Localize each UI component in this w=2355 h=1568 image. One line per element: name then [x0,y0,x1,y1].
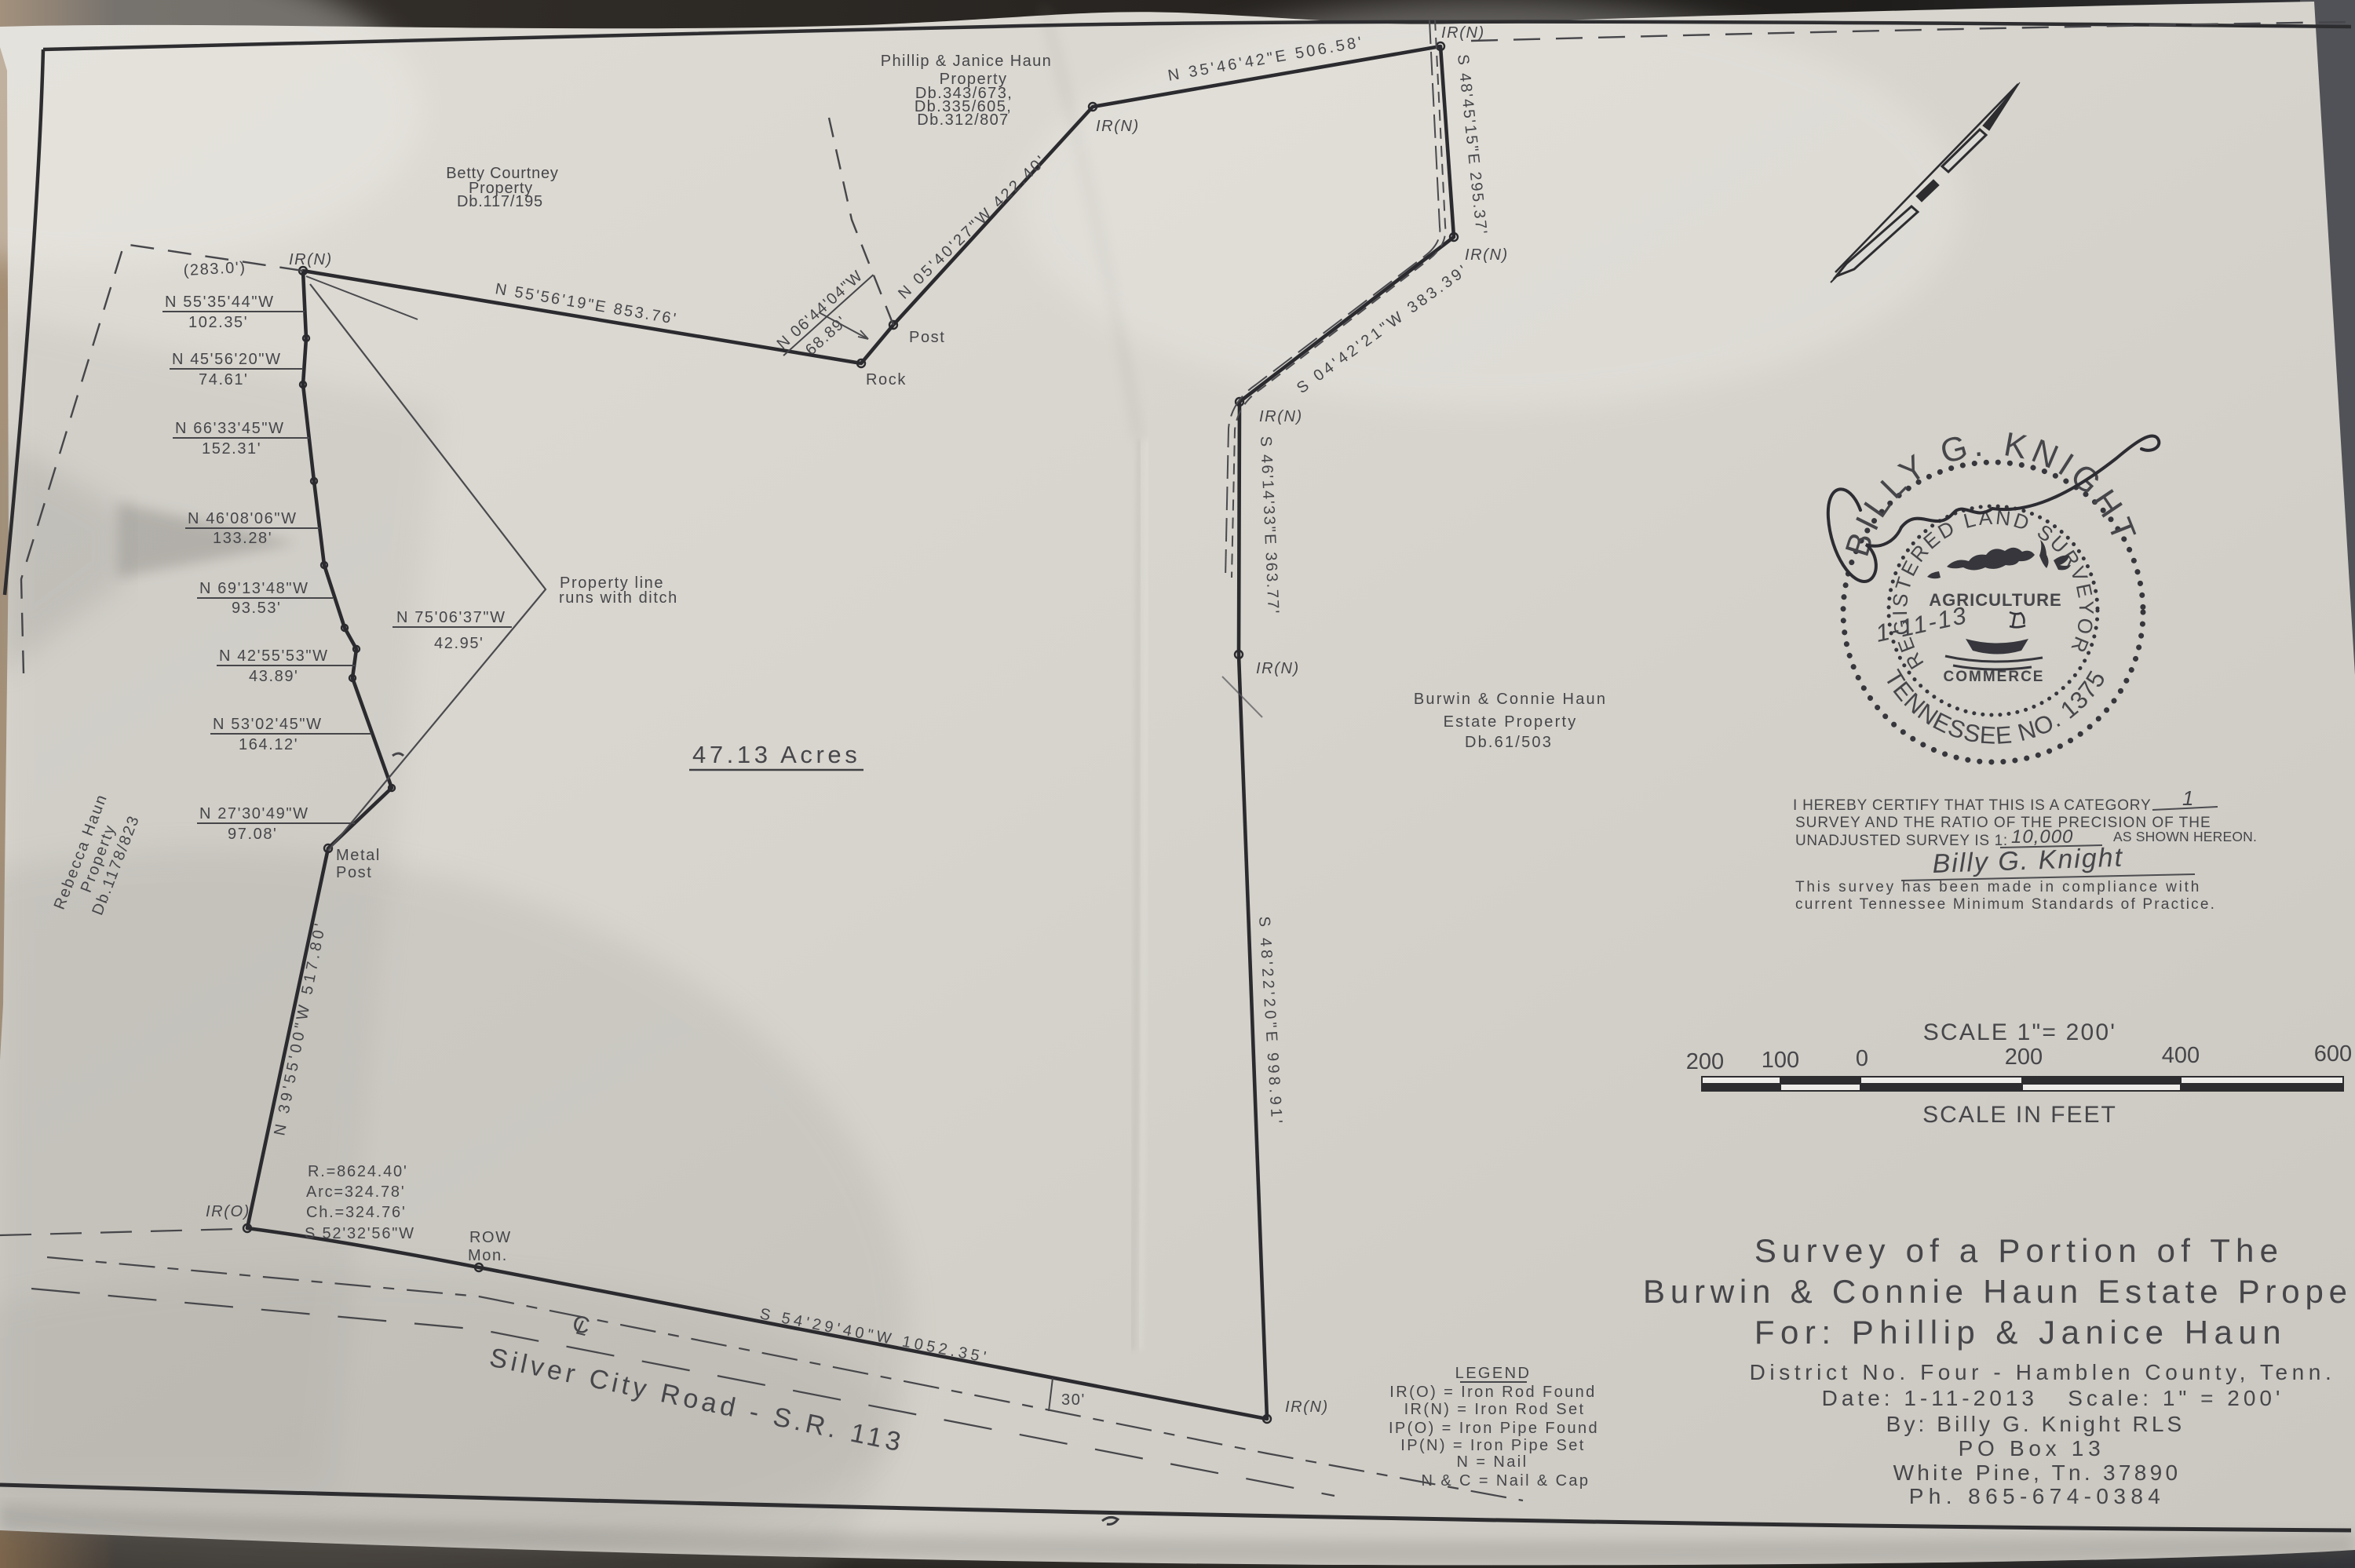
svg-text:1: 1 [2182,786,2193,810]
svg-text:N 69'13'48"W: N 69'13'48"W [199,580,309,597]
svg-text:Db.312/807: Db.312/807 [917,111,1009,129]
svg-text:IR(N): IR(N) [1259,408,1303,425]
svg-text:IR(N): IR(N) [1441,24,1485,42]
svg-text:400: 400 [2162,1043,2200,1068]
svg-text:N & C = Nail & Cap: N & C = Nail & Cap [1422,1472,1590,1490]
svg-text:IP(O) = Iron Pipe Found: IP(O) = Iron Pipe Found [1389,1420,1599,1437]
svg-text:AS SHOWN HEREON.: AS SHOWN HEREON. [2113,829,2257,844]
svg-text:Post: Post [909,329,945,346]
svg-text:This survey has been made in c: This survey has been made in compliance … [1795,879,2201,895]
svg-text:93.53': 93.53' [232,600,281,617]
svg-text:White Pine, Tn. 37890: White Pine, Tn. 37890 [1893,1460,2182,1485]
svg-text:runs with ditch: runs with ditch [559,589,678,607]
svg-text:N 27'30'49"W: N 27'30'49"W [199,805,309,822]
svg-text:District No. Four - Hamblen Co: District No. Four - Hamblen County, Tenn… [1750,1360,2336,1384]
svg-text:200: 200 [2005,1045,2043,1070]
svg-text:Db.61/503: Db.61/503 [1465,734,1553,751]
svg-text:IP(N) = Iron Pipe Set: IP(N) = Iron Pipe Set [1400,1437,1585,1454]
svg-text:Burwin & Connie Haun: Burwin & Connie Haun [1414,691,1607,708]
svg-text:74.61': 74.61' [199,371,248,388]
svg-text:200: 200 [1686,1049,1724,1074]
svg-text:Db.117/195: Db.117/195 [457,193,543,210]
svg-text:N 53'02'45"W: N 53'02'45"W [213,716,323,733]
svg-text:N 66'33'45"W: N 66'33'45"W [175,420,285,437]
svg-text:0: 0 [1856,1046,1868,1071]
svg-text:Phillip & Janice Haun: Phillip & Janice Haun [881,53,1052,70]
svg-text:Survey of a Portion of The: Survey of a Portion of The [1754,1232,2284,1269]
svg-text:N = Nail: N = Nail [1457,1453,1528,1471]
svg-text:152.31': 152.31' [202,440,261,458]
svg-text:(283.0'): (283.0') [183,259,246,279]
svg-text:133.28': 133.28' [213,530,272,547]
svg-text:600: 600 [2314,1041,2352,1067]
svg-text:47.13 Acres: 47.13 Acres [692,741,860,768]
svg-text:IR(N): IR(N) [1465,246,1509,264]
svg-text:COMMERCE: COMMERCE [1944,669,2045,685]
svg-text:IR(N): IR(N) [1256,660,1300,677]
svg-text:IR(O): IR(O) [206,1203,250,1220]
svg-text:Burwin & Connie Haun Estate Pr: Burwin & Connie Haun Estate Prope [1643,1273,2353,1310]
svg-text:UNADJUSTED SURVEY IS 1:: UNADJUSTED SURVEY IS 1: [1795,833,2008,849]
svg-text:SCALE IN FEET: SCALE IN FEET [1922,1102,2117,1128]
svg-text:102.35': 102.35' [188,314,248,331]
svg-text:Estate Property: Estate Property [1444,713,1578,731]
svg-text:100: 100 [1762,1048,1799,1073]
svg-text:By: Billy G. Knight RLS: By: Billy G. Knight RLS [1886,1412,2185,1436]
svg-text:43.89': 43.89' [249,668,298,685]
svg-text:IR(O) = Iron Rod Found: IR(O) = Iron Rod Found [1389,1384,1596,1401]
svg-text:IR(N): IR(N) [1096,118,1140,135]
svg-text:Ph. 865-674-0384: Ph. 865-674-0384 [1909,1484,2166,1508]
svg-text:current Tennessee Minimum Stan: current Tennessee Minimum Standards of P… [1795,896,2216,913]
svg-text:Post: Post [336,864,372,881]
svg-text:IR(N) = Iron Rod Set: IR(N) = Iron Rod Set [1404,1401,1586,1418]
svg-text:For: Phillip & Janice Haun: For: Phillip & Janice Haun [1754,1314,2287,1351]
svg-text:N 46'08'06"W: N 46'08'06"W [188,510,298,527]
svg-text:PO Box 13: PO Box 13 [1959,1436,2105,1460]
svg-text:Mon.: Mon. [468,1247,508,1264]
svg-text:IR(N): IR(N) [289,251,333,268]
svg-text:42.95': 42.95' [434,635,484,652]
svg-text:30': 30' [1061,1391,1086,1409]
svg-text:N 75'06'37"W: N 75'06'37"W [396,609,506,626]
svg-text:Ch.=324.76': Ch.=324.76' [306,1204,407,1221]
svg-text:N 42'55'53"W: N 42'55'53"W [219,647,329,665]
svg-text:N 45'56'20"W: N 45'56'20"W [172,351,282,368]
svg-text:164.12': 164.12' [239,736,298,753]
svg-text:97.08': 97.08' [228,826,277,843]
svg-text:Rock: Rock [866,371,907,388]
svg-text:IR(N): IR(N) [1285,1398,1329,1416]
svg-text:R.=8624.40': R.=8624.40' [308,1163,408,1180]
svg-text:LEGEND: LEGEND [1455,1365,1532,1382]
svg-text:ROW: ROW [469,1229,512,1246]
svg-text:Date: 1-11-2013 Scale: 1" =: Date: 1-11-2013 Scale: 1" = 200' [1822,1386,2284,1410]
svg-text:SCALE 1"= 200': SCALE 1"= 200' [1923,1019,2116,1045]
svg-text:Arc=324.78': Arc=324.78' [306,1183,405,1201]
svg-text:I HEREBY CERTIFY THAT THIS IS: I HEREBY CERTIFY THAT THIS IS A CATEGORY [1793,797,2151,814]
svg-text:S 52'32'56"W: S 52'32'56"W [305,1225,415,1242]
svg-text:N 55'35'44"W: N 55'35'44"W [165,294,275,311]
svg-text:Metal: Metal [336,847,381,864]
